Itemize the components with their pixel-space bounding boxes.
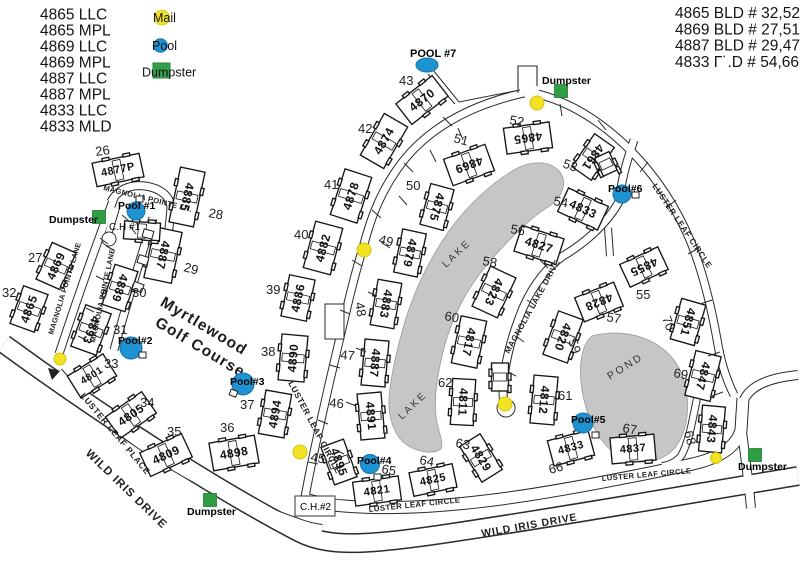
svg-text:56: 56	[509, 221, 526, 238]
svg-text:41: 41	[324, 177, 338, 192]
svg-text:4833 Γ˙.D # 54,66: 4833 Γ˙.D # 54,66	[675, 54, 799, 71]
svg-text:Pool#5: Pool#5	[571, 414, 606, 426]
svg-text:4887 BLD # 29,47: 4887 BLD # 29,47	[675, 38, 800, 55]
svg-text:33: 33	[104, 356, 118, 371]
svg-text:38: 38	[261, 344, 275, 359]
svg-text:64: 64	[418, 452, 435, 469]
svg-text:32: 32	[2, 285, 16, 300]
svg-text:Pool#3: Pool#3	[230, 376, 265, 388]
svg-text:26: 26	[94, 142, 110, 159]
svg-text:4891: 4891	[363, 401, 379, 431]
svg-text:42: 42	[358, 121, 372, 136]
svg-text:Pool: Pool	[152, 39, 177, 53]
svg-text:57: 57	[605, 309, 622, 326]
svg-text:4869 MPL: 4869 MPL	[40, 55, 111, 72]
svg-text:37: 37	[240, 397, 254, 412]
svg-text:58: 58	[481, 253, 498, 270]
svg-text:4865 LLC: 4865 LLC	[40, 7, 107, 24]
svg-text:55: 55	[636, 287, 650, 302]
svg-text:27: 27	[28, 250, 42, 265]
svg-text:34: 34	[140, 395, 154, 410]
svg-text:Pool#4: Pool#4	[357, 455, 392, 467]
svg-text:C.H #1: C.H #1	[109, 222, 141, 233]
svg-text:4869 LLC: 4869 LLC	[40, 39, 107, 56]
svg-text:45: 45	[309, 449, 326, 466]
svg-text:69: 69	[672, 365, 689, 382]
svg-text:52: 52	[508, 112, 525, 129]
svg-text:54: 54	[552, 193, 569, 210]
svg-text:39: 39	[266, 282, 280, 297]
svg-text:50: 50	[406, 178, 420, 193]
svg-text:36: 36	[220, 420, 234, 435]
svg-text:Dumpster: Dumpster	[142, 66, 196, 80]
svg-text:63: 63	[454, 435, 471, 452]
svg-text:Dumpster: Dumpster	[738, 461, 787, 473]
svg-text:61: 61	[558, 388, 572, 403]
svg-text:30: 30	[132, 285, 146, 300]
svg-text:48: 48	[352, 301, 369, 318]
svg-text:4843: 4843	[704, 414, 720, 444]
svg-text:4812: 4812	[536, 385, 552, 415]
svg-text:4887 MPL: 4887 MPL	[40, 87, 111, 104]
svg-text:28: 28	[207, 205, 224, 222]
svg-text:4811: 4811	[455, 388, 470, 417]
svg-text:4837: 4837	[619, 442, 646, 456]
svg-text:4833 LLC: 4833 LLC	[40, 103, 107, 120]
svg-text:4869 BLD # 27,51: 4869 BLD # 27,51	[675, 21, 800, 38]
svg-text:67: 67	[621, 420, 638, 437]
svg-text:4887: 4887	[367, 348, 383, 378]
svg-text:62: 62	[438, 375, 452, 390]
svg-text:4865 BLD # 32,52: 4865 BLD # 32,52	[675, 5, 800, 22]
svg-text:Dumpster: Dumpster	[49, 214, 98, 226]
svg-text:40: 40	[294, 227, 308, 242]
svg-text:Dumpster: Dumpster	[542, 75, 591, 87]
svg-text:4833 MLD: 4833 MLD	[40, 119, 112, 136]
svg-text:POOL #7: POOL #7	[410, 48, 456, 60]
svg-text:46: 46	[329, 395, 345, 411]
svg-text:35: 35	[167, 424, 181, 439]
svg-text:Mail: Mail	[153, 11, 176, 25]
svg-text:4887 LLC: 4887 LLC	[40, 71, 107, 88]
svg-text:43: 43	[399, 73, 413, 88]
svg-text:47: 47	[340, 347, 356, 363]
svg-text:4890: 4890	[285, 343, 301, 373]
svg-text:Dumpster: Dumpster	[187, 506, 236, 518]
svg-text:Pool#2: Pool#2	[118, 335, 153, 347]
svg-text:4865 MPL: 4865 MPL	[40, 23, 111, 40]
svg-text:60: 60	[443, 308, 460, 325]
svg-text:C.H.#2: C.H.#2	[300, 502, 332, 513]
